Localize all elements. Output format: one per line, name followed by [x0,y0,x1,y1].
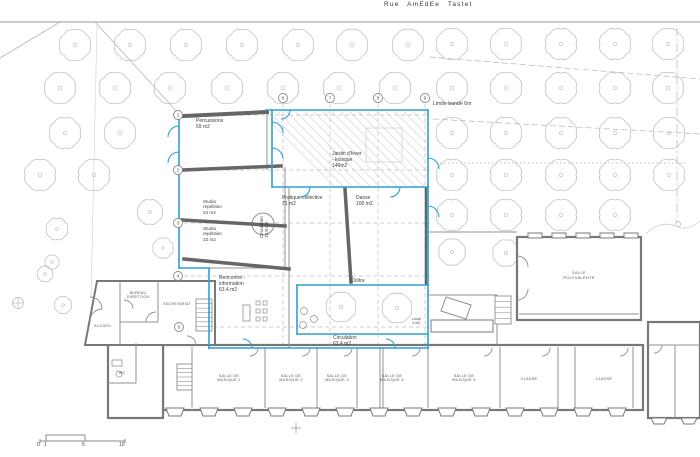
tree [652,72,683,103]
building-outline [517,237,641,320]
tree-trunk [162,247,165,250]
site-line [433,119,700,134]
tree-trunk [225,86,229,90]
tree [490,72,521,103]
tree-trunk [44,273,47,276]
tree [490,199,521,230]
hatch-line [278,112,352,186]
tree-trunk [337,86,341,90]
tree [49,117,80,148]
new-wall [345,189,351,282]
fixture-circle [301,308,308,315]
site-line [91,24,97,298]
fixture-rect [263,317,267,321]
tree [599,159,630,190]
tree-trunk [184,43,188,47]
tree-trunk [667,173,671,177]
buttress [574,408,592,416]
site-line [95,22,179,114]
fixture-rect [263,301,267,305]
buttress [370,408,388,416]
fixture-rect [243,305,250,321]
tree [599,199,630,230]
tree [545,159,576,190]
hatch-line [314,112,388,186]
tree-trunk [450,86,454,90]
tree [138,200,163,225]
blue-door-arc [428,158,439,169]
tree [439,239,465,265]
blue-door-arc [168,126,179,137]
tree [114,29,145,60]
hatch-line [350,112,424,186]
tree [46,218,68,240]
grid-marker-number: 1 [177,113,180,119]
tree [436,199,467,230]
tree-trunk [559,131,563,135]
tree-trunk [62,304,65,307]
tree [37,266,53,282]
tree [653,159,684,190]
fixture-rect [263,309,267,313]
tree-trunk [38,173,42,177]
grid-marker-number: 5 [178,325,181,331]
buttress [166,408,184,416]
tree-trunk [450,173,454,177]
building-polygon [85,281,215,345]
tree-trunk [450,131,454,135]
tree-trunk [240,43,244,47]
blue-door-arc [281,110,290,119]
blue-door-arc [300,187,310,197]
tree [599,72,630,103]
tree [379,72,410,103]
hatch-line [323,112,397,186]
tree [490,159,521,190]
tree [436,159,467,190]
tree [336,29,367,60]
tree [392,29,423,60]
tree-trunk [128,43,132,47]
tree-trunk [559,86,563,90]
fixture-rect [576,233,590,238]
blue-door-arc [272,148,283,159]
tree-trunk [58,86,62,90]
tree-trunk [395,306,398,309]
tree-trunk [450,213,454,217]
tree [545,199,576,230]
hatch-line [332,112,406,186]
grid-marker-number: 3 [177,221,180,227]
hatch-line [368,112,442,186]
grid-marker-number: 8 [377,96,380,102]
plan-svg: 123456789 [0,0,700,457]
buttress [608,408,626,416]
blue-door-arc [390,187,400,197]
tree-trunk [613,173,617,177]
tree-trunk [296,43,300,47]
tree [326,292,356,322]
tree [436,117,467,148]
tree [436,28,467,59]
tree-trunk [504,173,508,177]
hatch-layer [260,112,487,186]
tree-trunk [559,173,563,177]
tree [154,72,185,103]
buttress [506,408,524,416]
fixture-rect [431,320,493,332]
new-wall [182,166,281,170]
tree-trunk [393,86,397,90]
tree-trunk [350,43,354,47]
tree-trunk [56,228,59,231]
door-arc [46,435,85,441]
buttress [268,408,286,416]
tree-trunk [666,86,670,90]
tree [436,72,467,103]
tree-trunk [118,131,122,135]
blue-outline-layer [179,110,428,348]
hatch-line [260,112,334,186]
hatch-line [305,112,379,186]
tree-trunk [113,86,117,90]
buttress [302,408,320,416]
hatch-line [359,112,433,186]
tree-trunk [73,43,77,47]
tree [104,117,135,148]
tree-trunk [559,42,563,46]
tree-trunk [666,42,670,46]
grid-marker-number: 9 [424,96,427,102]
tree-trunk [504,213,508,217]
fixture-circle [300,322,307,329]
grid-marker-number: 4 [177,274,180,280]
fixture-rect [256,317,260,321]
buttress [438,408,456,416]
tree [211,72,242,103]
tree-trunk [613,213,617,217]
tree [545,72,576,103]
fixture-rect [528,233,542,238]
site-line [0,22,60,58]
tree [493,240,519,266]
tree-trunk [406,43,410,47]
tree-trunk [504,42,508,46]
buttress [681,418,697,424]
hatch-line [296,112,370,186]
door-arc [646,221,700,234]
tree [55,297,72,314]
blue-door-arc [272,122,283,133]
tree-trunk [504,131,508,135]
tree [44,72,75,103]
tree [45,255,59,269]
tree-trunk [667,131,671,135]
tree-trunk [613,86,617,90]
hatch-line [395,112,469,186]
tree-trunk [559,213,563,217]
tree-trunk [450,42,454,46]
tree-trunk [613,42,617,46]
fixture-rect [256,309,260,313]
tree-trunk [339,305,342,308]
buttress [200,408,218,416]
new-wall [184,112,267,116]
tree [24,159,55,190]
tree [545,117,576,148]
buttress [540,408,558,416]
tree-trunk [450,250,453,253]
hatch-line [287,112,361,186]
tree [226,29,257,60]
fixture-rect [256,301,260,305]
tree-trunk [613,131,617,135]
buttress [404,408,422,416]
buttress [472,408,490,416]
tree [490,28,521,59]
tree [545,28,576,59]
tree-trunk [281,86,285,90]
fixture-rect [600,233,614,238]
buttress [234,408,252,416]
tree-trunk [504,86,508,90]
grid-marker-number: 6 [282,96,285,102]
floor-plan-canvas: 123456789 Rue AmEdEe TastetLimite bande … [0,0,700,457]
stair [495,296,511,324]
hatch-line [269,112,343,186]
site-line [430,57,700,79]
tree [99,72,130,103]
tree-trunk [51,261,54,264]
fixture-rect [624,233,638,238]
tree [382,293,412,323]
tree-trunk [149,211,152,214]
tree [490,117,521,148]
fixture-rect [552,233,566,238]
buttress [651,418,667,424]
tree [59,29,90,60]
tree-trunk [504,251,507,254]
grid-marker-number: 2 [177,168,180,174]
building-outline [163,345,643,410]
grid-marker-number: 7 [329,96,332,102]
fixture-circle [311,316,318,323]
tree [153,238,173,258]
tree [170,29,201,60]
building-outline [648,322,700,418]
tree [599,117,630,148]
buttress [336,408,354,416]
tree-trunk [63,131,67,135]
tree [282,29,313,60]
tree [599,28,630,59]
building-polygon [441,297,471,319]
tree [652,28,683,59]
blue-door-arc [168,152,179,163]
tree-trunk [168,86,172,90]
